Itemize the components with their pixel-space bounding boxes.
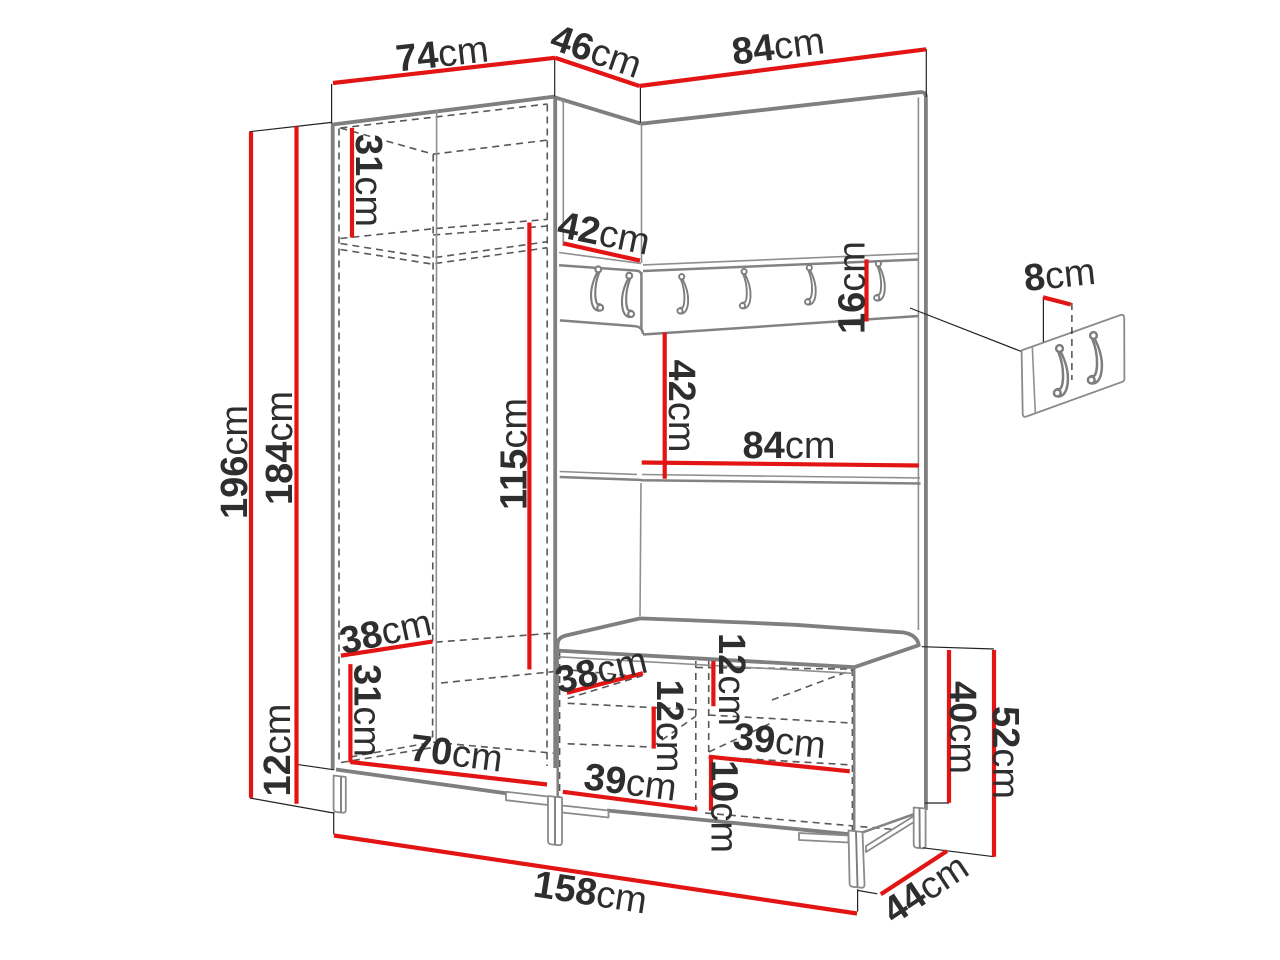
svg-text:184cm: 184cm	[259, 391, 301, 505]
svg-text:40cm: 40cm	[941, 681, 983, 774]
svg-text:115cm: 115cm	[494, 398, 536, 510]
svg-text:10cm: 10cm	[703, 760, 745, 853]
svg-text:31cm: 31cm	[347, 134, 389, 227]
svg-text:196cm: 196cm	[214, 405, 256, 519]
svg-text:42cm: 42cm	[660, 360, 702, 453]
svg-text:31cm: 31cm	[346, 664, 388, 757]
svg-text:84cm: 84cm	[743, 425, 836, 467]
svg-text:16cm: 16cm	[832, 241, 874, 334]
svg-text:52cm: 52cm	[984, 706, 1026, 799]
svg-text:12cm: 12cm	[257, 704, 299, 797]
svg-text:12cm: 12cm	[648, 680, 690, 773]
svg-text:8cm: 8cm	[1022, 251, 1098, 300]
svg-text:12cm: 12cm	[710, 633, 752, 726]
